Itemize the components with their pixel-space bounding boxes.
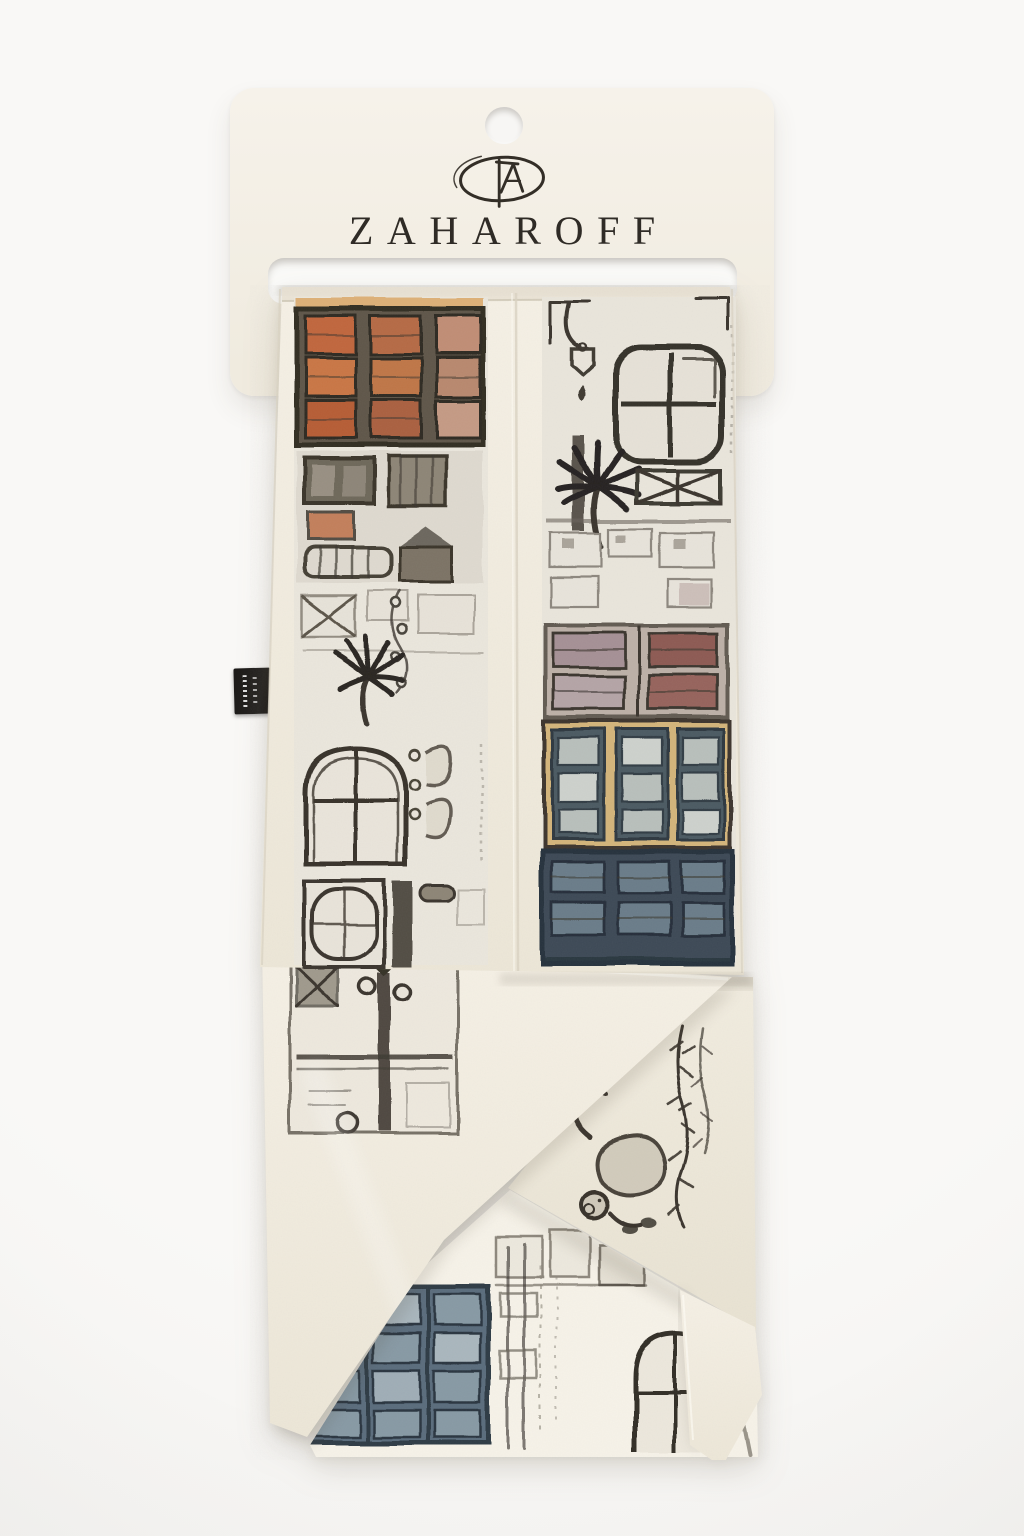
scarf — [250, 285, 770, 1460]
brand-logo-icon — [437, 146, 567, 212]
hanger-hole — [485, 107, 523, 144]
fabric-grain-texture — [250, 285, 770, 1460]
brand-name: ZAHAROFF — [230, 207, 774, 254]
product-photo-backdrop: ZAHAROFF — [0, 0, 1024, 1536]
care-label-text-marks — [243, 675, 248, 708]
